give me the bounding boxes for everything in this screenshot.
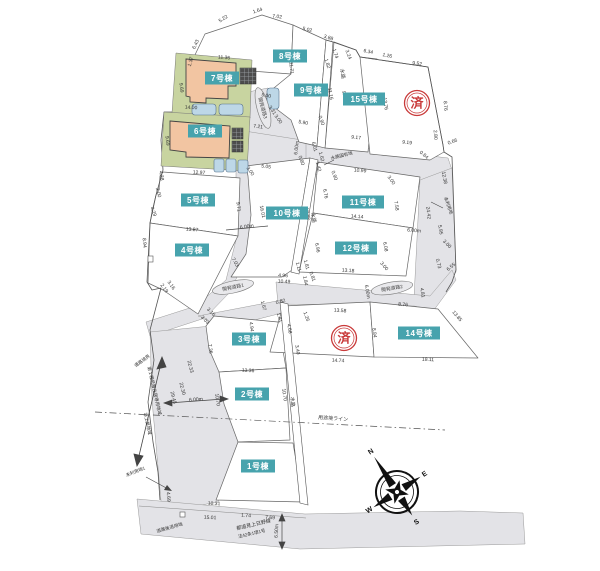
lot-number-label: 11号棟	[342, 196, 384, 209]
lot-number-label: 8号棟	[273, 50, 307, 63]
dimension-label: 11.36	[218, 55, 231, 62]
lot-number-label: 3号棟	[232, 333, 266, 346]
site-plan-page: N E S W 開発道路1開発道路2開発道路3 5.221.647.025.02…	[0, 0, 600, 571]
road-bottom-band	[137, 499, 525, 549]
dimension-label: 10.99	[354, 167, 367, 174]
dimension-label: 6.00m	[407, 228, 421, 235]
dimension-label: 2.00	[154, 187, 162, 198]
lot-number-label: 5号棟	[181, 194, 215, 207]
lot-number-text: 9号棟	[300, 85, 322, 95]
dimension-label: 13.85	[450, 310, 463, 324]
lot-number-label: 9号棟	[294, 84, 328, 97]
lot-number-text: 1号棟	[247, 461, 269, 471]
lot-number-text: 14号棟	[406, 328, 433, 338]
sold-stamp-text: 済	[337, 331, 351, 346]
lot-number-text: 10号棟	[274, 208, 301, 218]
dimension-label: 8.76	[398, 302, 408, 309]
car-space-6b	[226, 159, 236, 172]
dimension-label: 13.18	[342, 268, 355, 275]
dimension-label: 2.80	[432, 130, 439, 140]
dimension-label: 0.66	[447, 138, 458, 147]
dimension-label: 1.74	[241, 513, 251, 520]
dimension-label: 14.00	[185, 105, 198, 112]
dimension-label: 6.00m	[189, 397, 203, 404]
dimension-label: 4.94	[247, 322, 254, 333]
area-label: 未利用地1	[125, 464, 147, 478]
dimension-label: 13.36	[242, 368, 255, 375]
lot-number-text: 12号棟	[343, 243, 370, 253]
hatch-terrace-6b	[232, 141, 243, 152]
dimension-label: 8.94	[141, 238, 148, 248]
lot-number-text: 6号棟	[194, 126, 216, 136]
lot-number-text: 11号棟	[350, 197, 377, 207]
dimension-label: 13.58	[334, 308, 347, 315]
lot-number-label: 15号棟	[343, 93, 385, 106]
lot-number-label: 2号棟	[235, 388, 269, 401]
dimension-label: 1.64	[252, 7, 263, 16]
lot-number-text: 7号棟	[211, 73, 233, 83]
lot-number-text: 8号棟	[279, 51, 301, 61]
dimension-label: 13.87	[186, 227, 199, 234]
dimension-label: 18.11	[422, 357, 435, 363]
hatch-terrace-7	[240, 68, 256, 84]
dimension-label: 8.84	[370, 328, 377, 339]
lot-number-label: 4号棟	[175, 244, 209, 257]
hatch-terrace-6a	[232, 128, 243, 139]
car-space-7b	[219, 104, 243, 115]
dimension-label: 10.31	[208, 501, 221, 508]
dimension-label: 3.40	[293, 345, 301, 356]
dimension-label: 10.49	[278, 279, 291, 286]
dimension-label: 6.34	[363, 48, 374, 56]
dimension-label: 14.74	[332, 358, 345, 365]
lot-number-text: 5号棟	[187, 195, 209, 205]
lot-number-text: 2号棟	[241, 389, 263, 399]
lot-number-text: 3号棟	[238, 334, 260, 344]
dimension-label: 7.36	[206, 344, 213, 355]
site-plan-drawing: N E S W 開発道路1開発道路2開発道路3 5.221.647.025.02…	[0, 0, 600, 571]
lot-number-label: 10号棟	[266, 207, 308, 220]
lot-number-text: 4号棟	[181, 245, 203, 255]
dimension-label: 15.01	[204, 515, 217, 522]
dimension-label: 1.26	[382, 52, 393, 60]
area-label: 水路	[289, 397, 297, 408]
lot-number-label: 12号棟	[335, 242, 377, 255]
sold-stamp-text: 済	[410, 96, 424, 111]
lot-number-label: 14号棟	[398, 327, 440, 340]
dimension-label: 11.71	[287, 62, 294, 75]
lot-number-label: 6号棟	[188, 125, 222, 138]
dimension-label: 9.19	[402, 140, 413, 147]
dimension-label: 6.50m	[274, 524, 281, 538]
dimension-label: 12.97	[193, 170, 206, 177]
dimension-label: 4.38	[157, 171, 165, 182]
compass-n: N	[367, 448, 375, 457]
dimension-label: 5.22	[218, 14, 230, 24]
lot-number-text: 15号棟	[351, 94, 378, 104]
dimension-label: 14.14	[351, 213, 364, 220]
area-label: 用途境ライン	[318, 414, 348, 423]
lot-number-label: 7号棟	[205, 72, 239, 85]
area-label: 準工業地域	[142, 412, 154, 436]
car-space-6a	[214, 159, 224, 172]
lot-number-label: 1号棟	[241, 460, 275, 473]
lot-4	[148, 223, 238, 314]
dimension-label: 8.76	[442, 101, 449, 111]
dimension-label: 9.71	[234, 202, 241, 213]
dimension-label: 9.69	[163, 136, 170, 147]
compass-e: E	[421, 470, 429, 479]
dimension-label: 4.69	[165, 492, 172, 502]
dimension-label: 9.17	[351, 135, 362, 142]
